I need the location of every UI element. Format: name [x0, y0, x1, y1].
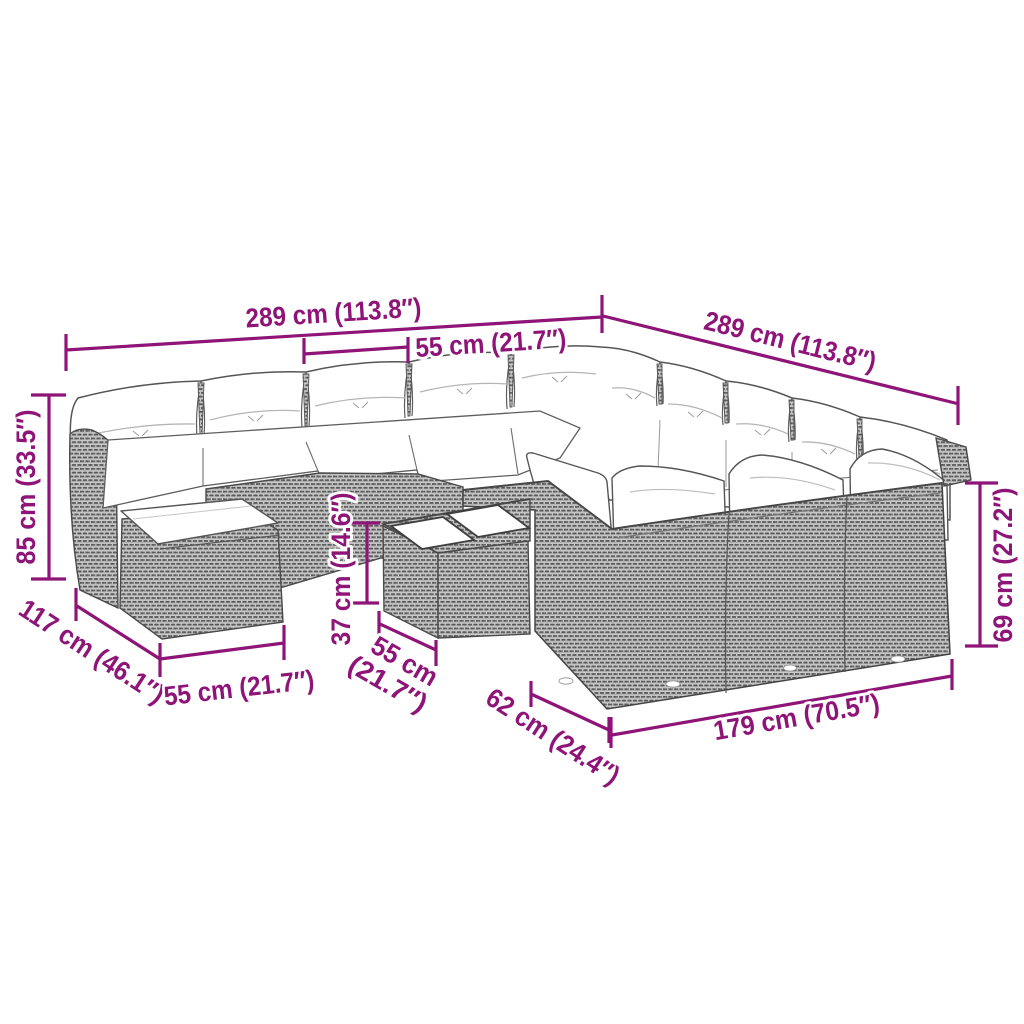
svg-text:37 cm (14.6″): 37 cm (14.6″): [326, 493, 356, 646]
svg-text:69 cm (27.2″): 69 cm (27.2″): [988, 488, 1018, 643]
svg-text:85 cm (33.5″): 85 cm (33.5″): [11, 410, 41, 565]
